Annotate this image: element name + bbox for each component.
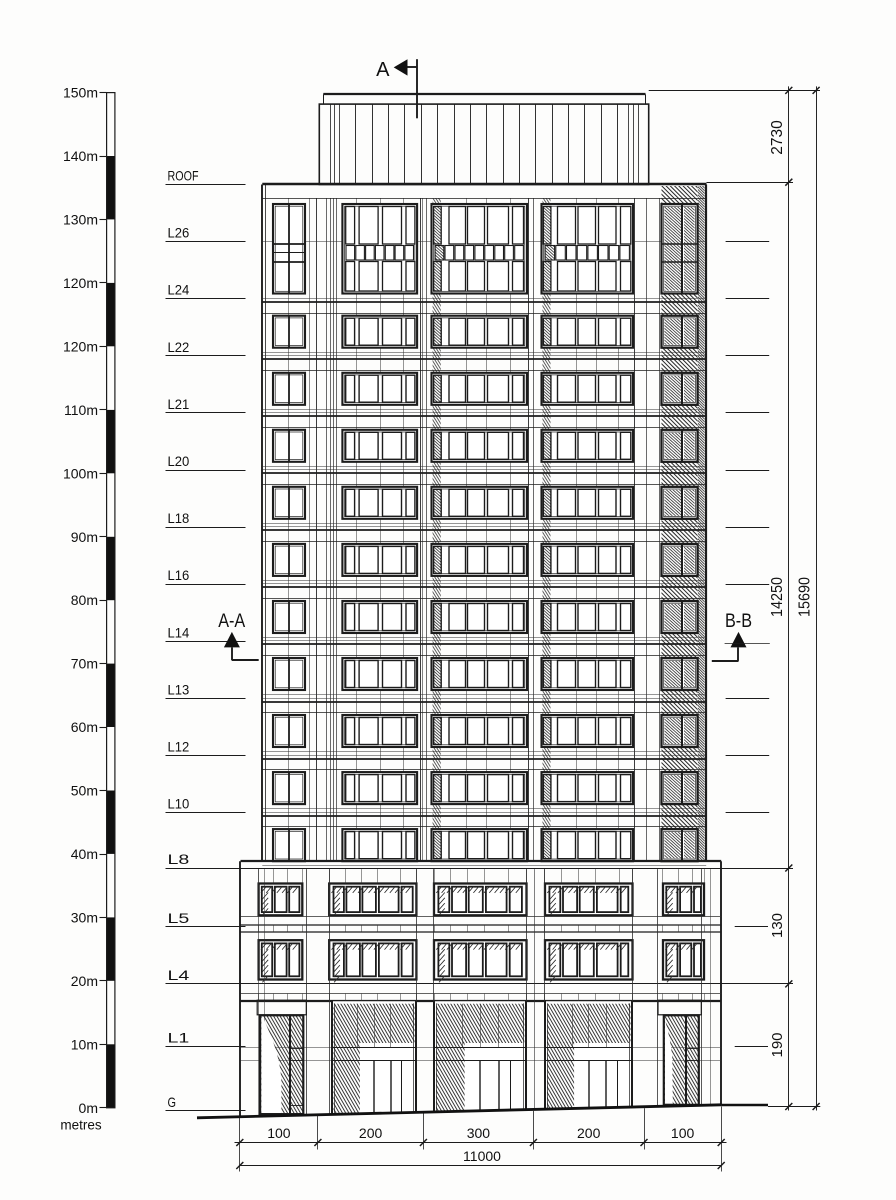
svg-text:L21: L21 (168, 396, 190, 412)
svg-text:L16: L16 (168, 567, 190, 583)
svg-text:L20: L20 (168, 453, 190, 469)
svg-text:140m: 140m (63, 148, 98, 164)
svg-text:300: 300 (467, 1125, 491, 1141)
svg-text:200: 200 (577, 1125, 601, 1141)
svg-text:120m: 120m (63, 275, 98, 291)
svg-text:130: 130 (769, 913, 786, 938)
svg-text:11000: 11000 (463, 1148, 501, 1164)
svg-text:L1: L1 (168, 1030, 190, 1046)
svg-text:L4: L4 (168, 967, 190, 983)
svg-text:L12: L12 (168, 739, 190, 755)
svg-text:0m: 0m (79, 1100, 98, 1116)
svg-text:L5: L5 (168, 910, 190, 926)
svg-text:40m: 40m (71, 846, 98, 862)
svg-text:20m: 20m (71, 973, 98, 989)
svg-text:A: A (376, 59, 390, 81)
svg-text:L24: L24 (168, 282, 190, 298)
svg-text:30m: 30m (71, 909, 98, 925)
svg-text:ROOF: ROOF (168, 168, 199, 184)
svg-text:130m: 130m (63, 212, 98, 228)
svg-text:200: 200 (359, 1125, 383, 1141)
svg-text:G: G (168, 1094, 177, 1110)
svg-text:L22: L22 (168, 339, 190, 355)
svg-text:90m: 90m (71, 529, 98, 545)
svg-text:120m: 120m (63, 338, 98, 354)
svg-text:L13: L13 (168, 681, 190, 697)
svg-text:metres: metres (60, 1118, 102, 1133)
svg-text:B-B: B-B (725, 610, 752, 632)
svg-text:150m: 150m (63, 85, 98, 101)
svg-text:100m: 100m (63, 465, 98, 481)
svg-text:190: 190 (769, 1032, 786, 1057)
svg-text:L10: L10 (168, 796, 190, 812)
svg-text:100: 100 (267, 1125, 291, 1141)
svg-text:L26: L26 (168, 225, 190, 241)
svg-text:A-A: A-A (218, 610, 245, 632)
svg-text:14250: 14250 (769, 577, 786, 617)
svg-text:60m: 60m (71, 719, 98, 735)
svg-text:2730: 2730 (769, 120, 786, 155)
svg-text:L8: L8 (168, 851, 190, 867)
svg-text:10m: 10m (71, 1036, 98, 1052)
svg-text:80m: 80m (71, 592, 98, 608)
svg-text:15690: 15690 (797, 577, 814, 617)
svg-text:L18: L18 (168, 510, 190, 526)
svg-text:100: 100 (671, 1125, 695, 1141)
svg-text:50m: 50m (71, 783, 98, 799)
svg-text:70m: 70m (71, 656, 98, 672)
svg-text:110m: 110m (64, 402, 98, 418)
svg-text:L14: L14 (168, 624, 190, 640)
